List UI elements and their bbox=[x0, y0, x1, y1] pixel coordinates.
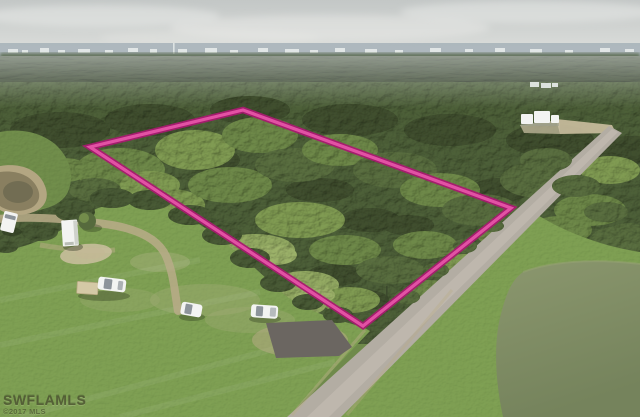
photo-canvas bbox=[0, 0, 640, 417]
utility-box-trailer bbox=[61, 219, 79, 246]
pond-right bbox=[496, 261, 640, 417]
aerial-haze bbox=[0, 56, 640, 108]
aerial-listing-photo: SWFLAMLS ©2017 MLS bbox=[0, 0, 640, 417]
flatbed-trailer bbox=[77, 281, 99, 294]
white-car-center bbox=[251, 304, 279, 319]
pond-left-deep bbox=[3, 181, 33, 203]
distant-tower bbox=[173, 43, 175, 54]
lawn-tree-highlight bbox=[79, 213, 89, 223]
